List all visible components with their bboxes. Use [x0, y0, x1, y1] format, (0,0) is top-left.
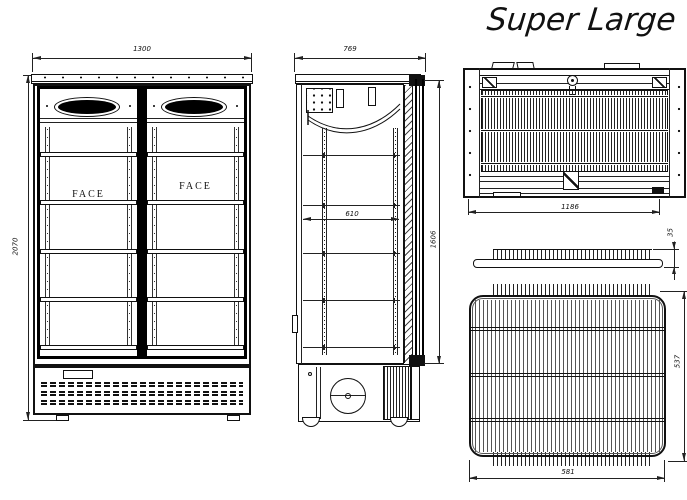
shelf-support-rod [471, 418, 664, 422]
technical-drawing-canvas: Super Large 1300 2070 [0, 0, 687, 500]
shelf-top-view: 581 537 [0, 0, 687, 500]
dimension-line-shelf-width [469, 478, 665, 479]
extension-line [668, 461, 687, 462]
dimension-line-shelf-depth [684, 291, 685, 461]
shelf-support-rod [471, 373, 664, 377]
shelf-support-rod [471, 327, 664, 331]
dimension-label-shelf-depth: 537 [674, 350, 683, 374]
dimension-label-shelf-width: 581 [548, 468, 588, 477]
